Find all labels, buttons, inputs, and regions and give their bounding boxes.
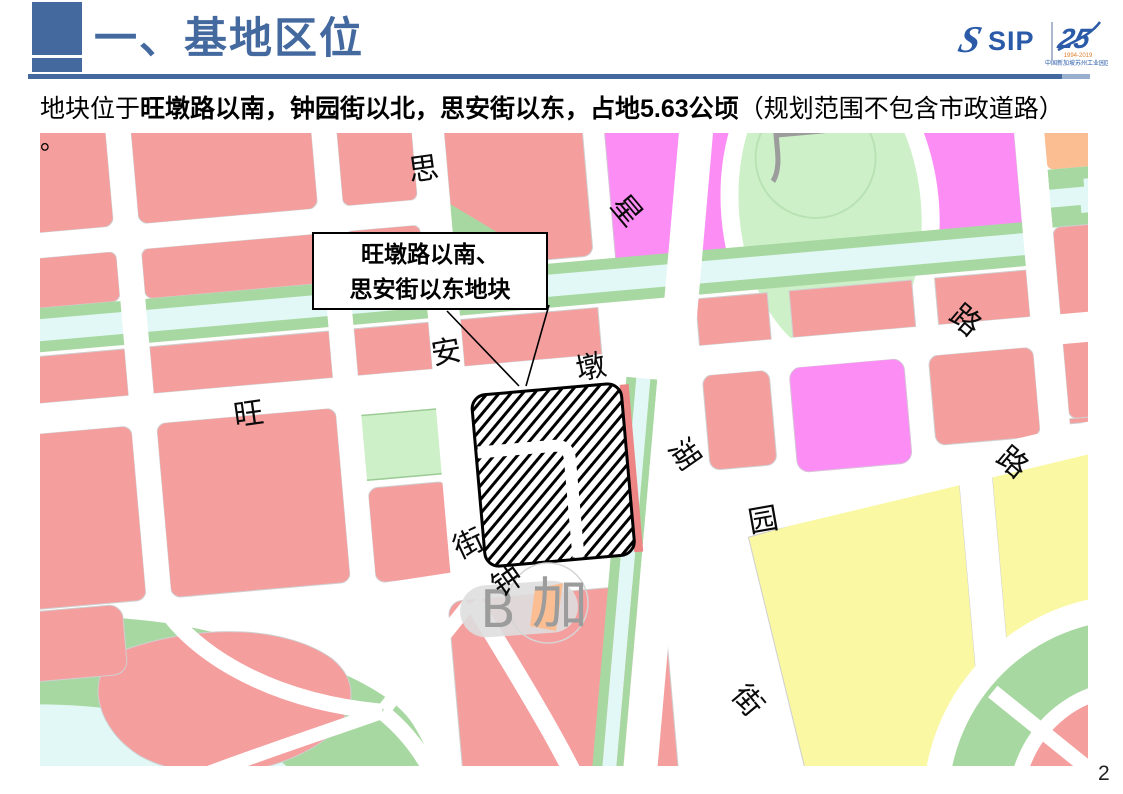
sip-wordmark: SIP (988, 26, 1035, 56)
road-label: 思 (406, 150, 441, 189)
site-plot (471, 382, 643, 567)
anniversary-org: 中国新加坡苏州工业园区 (1045, 59, 1108, 67)
road-label: 墩 (573, 347, 610, 387)
title-decor-square-small (32, 58, 82, 72)
road-label: 园 (746, 501, 782, 541)
site-callout: 旺墩路以南、 思安街以东地块 (312, 232, 548, 310)
title-decor-square (32, 2, 82, 55)
desc-bold: 旺墩路以南，钟园街以北，思安街以东，占地5.63公顷 (140, 95, 739, 123)
anniversary-years: 1994-2019 (1064, 53, 1093, 59)
road-label: 街 (724, 678, 770, 723)
title-divider (28, 74, 1062, 79)
sip-logo: S SIP 25 1994-2019 中国新加坡苏州工业园区 (948, 14, 1108, 70)
watermark-plaza: 广 (763, 133, 833, 194)
svg-text:25: 25 (1055, 22, 1095, 54)
slide: { "page": { "number": "2" }, "header": {… (0, 0, 1123, 794)
street-grid (40, 133, 1088, 766)
road-label: 安 (429, 333, 465, 373)
page-title: 一、基地区位 (94, 4, 364, 66)
title-divider-tail (1062, 74, 1090, 79)
callout-line2: 思安街以东地块 (350, 276, 511, 302)
svg-text:S: S (954, 20, 985, 61)
anniversary-25-icon: 25 1994-2019 中国新加坡苏州工业园区 (1045, 22, 1108, 67)
page-number: 2 (1098, 762, 1110, 786)
sip-s-icon: S (954, 20, 985, 61)
watermark-jia: 加 (532, 572, 588, 637)
desc-prefix: 地块位于 (40, 95, 140, 123)
desc-suffix: （规划范围不包含市政道路） (739, 95, 1064, 123)
road-label: 旺 (231, 395, 266, 434)
location-map: B 加 广 思 星 安 墩 旺 湖 路 园 路 街 钟 街 旺墩路以南、 思安街… (40, 133, 1088, 766)
callout-line1: 旺墩路以南、 (361, 241, 499, 267)
